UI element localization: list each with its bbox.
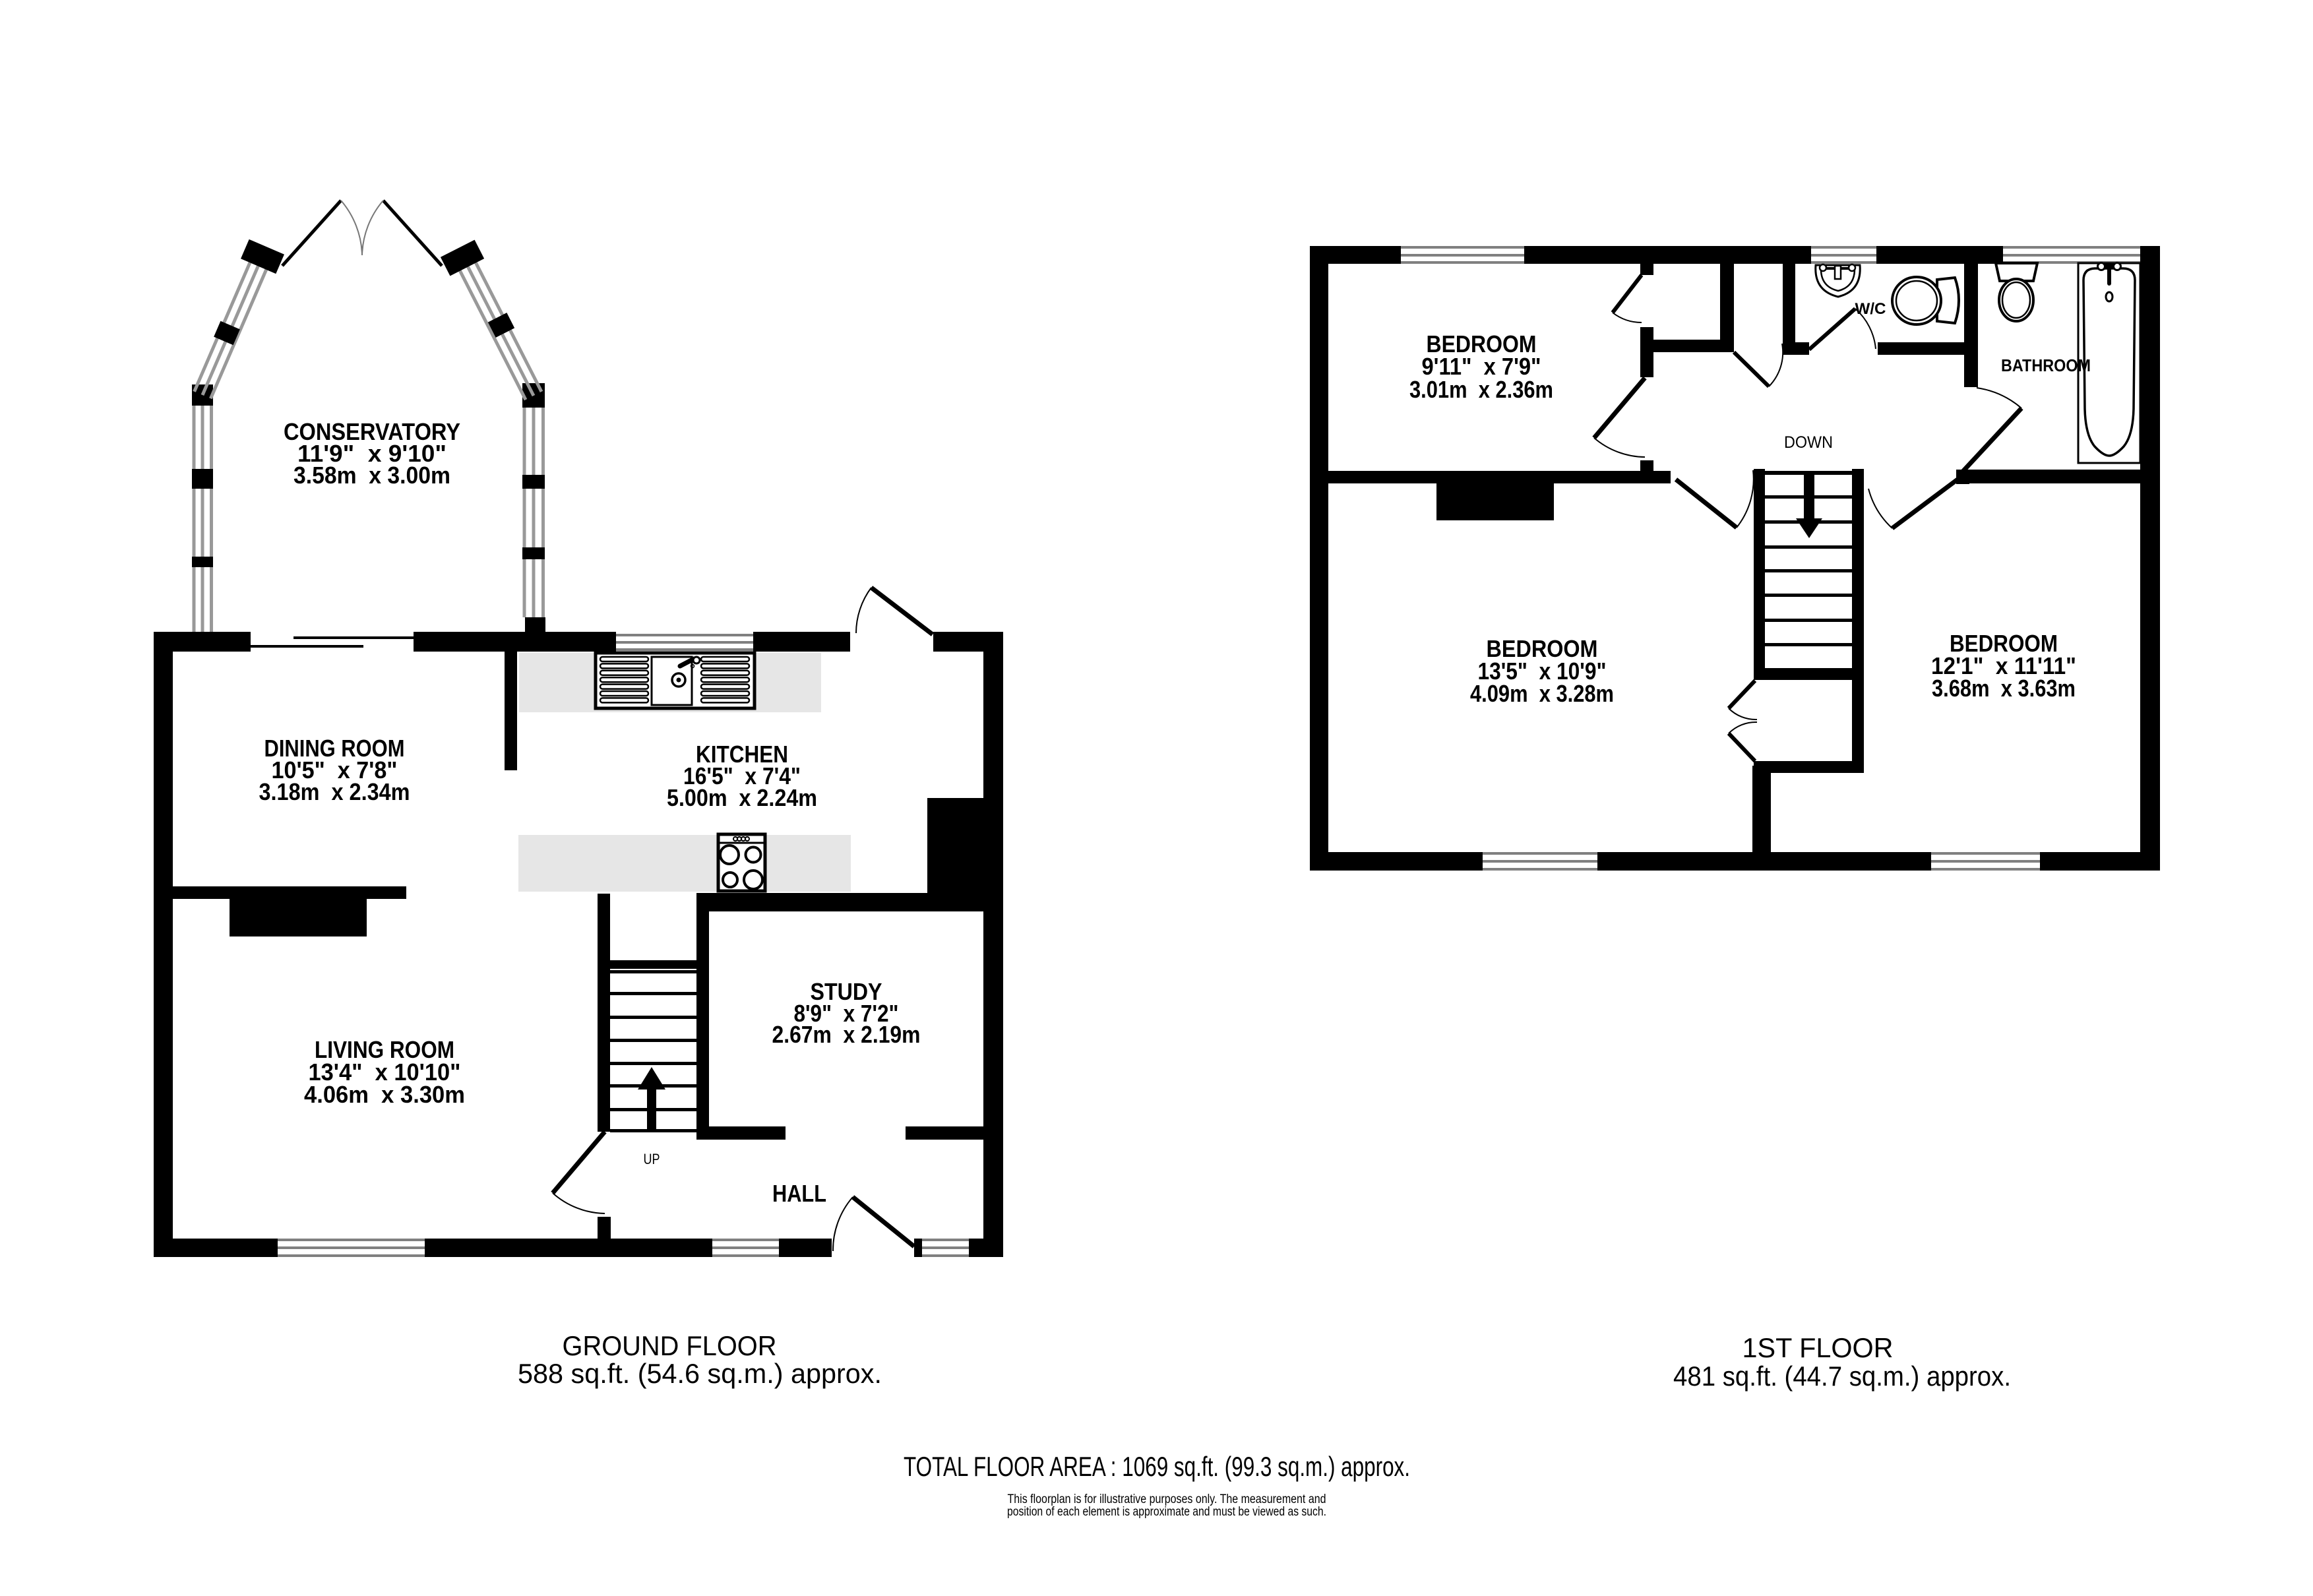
svg-text:4.06m x 3.30m: 4.06m x 3.30m — [304, 1081, 465, 1108]
svg-text:DOWN: DOWN — [1784, 433, 1833, 452]
svg-text:5.00m x 2.24m: 5.00m x 2.24m — [667, 784, 817, 811]
svg-text:3.18m x 2.34m: 3.18m x 2.34m — [259, 778, 410, 805]
svg-text:UP: UP — [644, 1151, 660, 1167]
svg-text:3.68m x 3.63m: 3.68m x 3.63m — [1932, 675, 2076, 702]
svg-text:2.67m x 2.19m: 2.67m x 2.19m — [772, 1021, 921, 1048]
svg-text:3.58m x 3.00m: 3.58m x 3.00m — [293, 462, 450, 489]
svg-text:1ST FLOOR: 1ST FLOOR — [1742, 1332, 1894, 1363]
svg-text:GROUND FLOOR: GROUND FLOOR — [563, 1330, 777, 1361]
svg-text:481 sq.ft. (44.7 sq.m.) approx: 481 sq.ft. (44.7 sq.m.) approx. — [1673, 1361, 2011, 1392]
svg-text:W/C: W/C — [1855, 300, 1886, 318]
svg-text:HALL: HALL — [772, 1180, 826, 1207]
svg-text:position of each element is ap: position of each element is approximate … — [1007, 1505, 1326, 1519]
svg-text:BATHROOM: BATHROOM — [2001, 355, 2091, 375]
svg-text:3.01m x 2.36m: 3.01m x 2.36m — [1409, 376, 1553, 403]
svg-text:4.09m x 3.28m: 4.09m x 3.28m — [1470, 680, 1614, 707]
svg-text:588 sq.ft. (54.6 sq.m.) approx: 588 sq.ft. (54.6 sq.m.) approx. — [518, 1358, 882, 1389]
svg-text:This floorplan is for illustra: This floorplan is for illustrative purpo… — [1008, 1492, 1326, 1506]
svg-text:TOTAL FLOOR AREA : 1069 sq.ft.: TOTAL FLOOR AREA : 1069 sq.ft. (99.3 sq.… — [904, 1451, 1410, 1482]
